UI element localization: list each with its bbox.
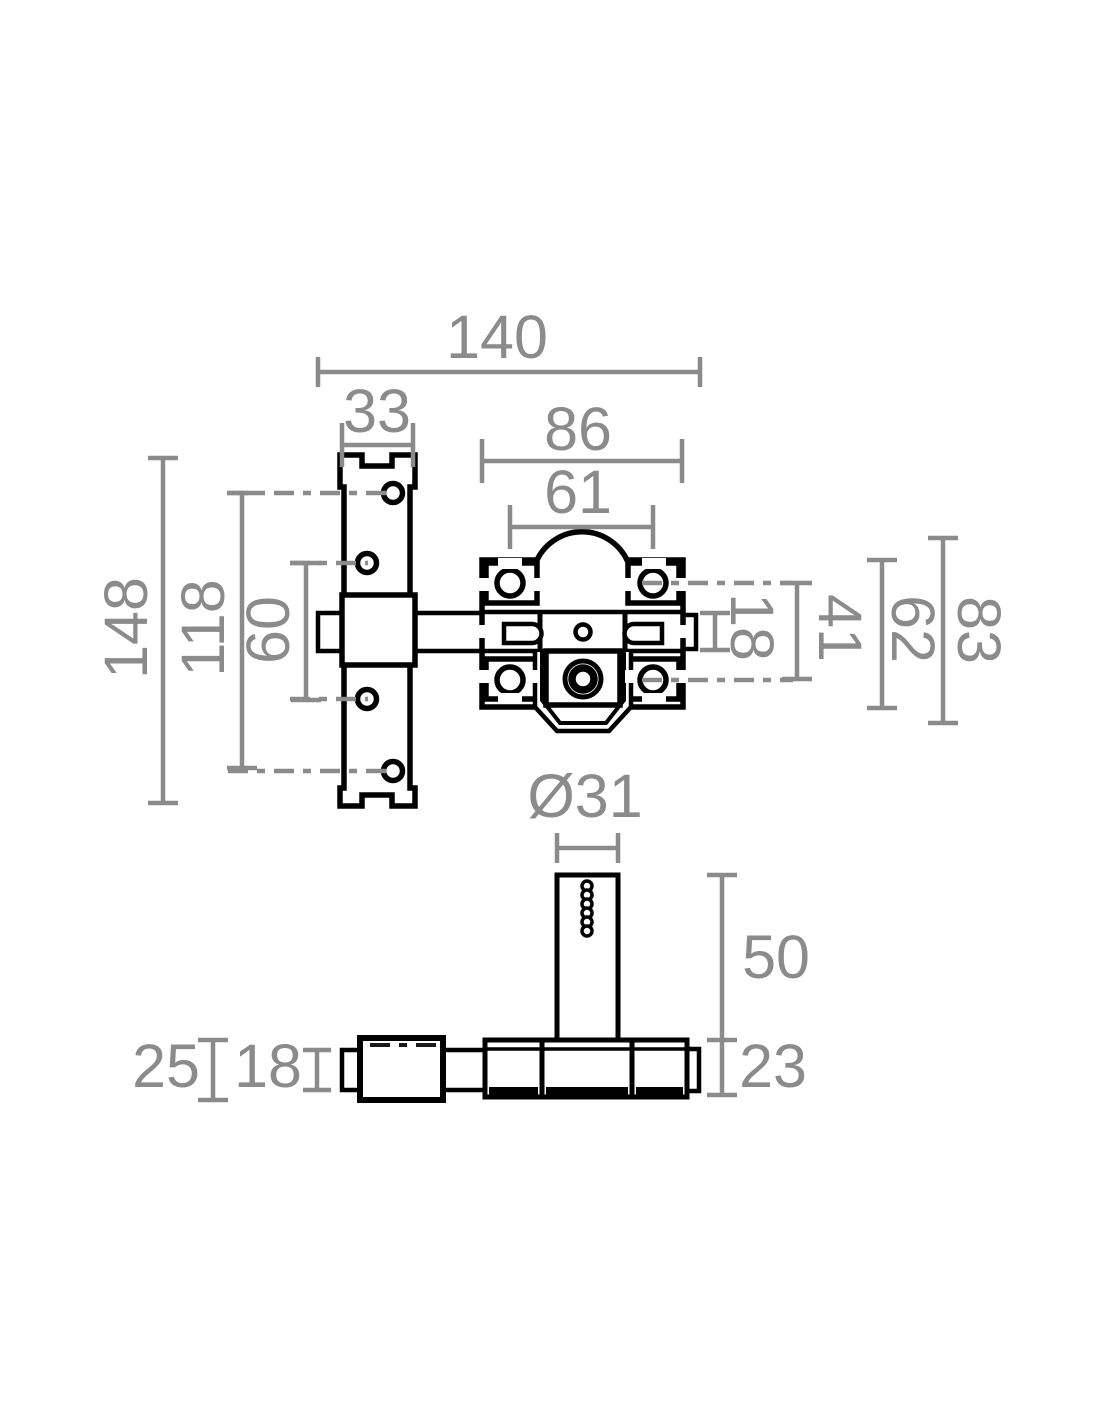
dim-body-width-label: 86 bbox=[544, 395, 612, 463]
keeper-hole-top bbox=[384, 484, 403, 503]
cylinder-inner-ring bbox=[572, 668, 594, 690]
notch-wall-left-mid bbox=[479, 625, 489, 638]
dim-base-depth-label: 23 bbox=[739, 1032, 807, 1100]
base-foot-left bbox=[489, 1087, 538, 1097]
channel-slot-right bbox=[625, 624, 663, 643]
ear-hole-lower-left bbox=[497, 667, 523, 693]
notch-pad-ul-top bbox=[498, 558, 522, 569]
lock-technical-drawing: 140 33 86 61 148 118 60 18 bbox=[0, 0, 1100, 1422]
keeper-middle-block bbox=[342, 595, 415, 665]
dim-bolt-height: 18 bbox=[700, 593, 786, 661]
drawing-canvas: 140 33 86 61 148 118 60 18 bbox=[0, 0, 1100, 1422]
base-foot-center bbox=[546, 1087, 628, 1097]
dim-bolt-depth: 18 bbox=[234, 1032, 331, 1100]
notch-wall-right-mid bbox=[676, 625, 686, 638]
dim-base-depth: 23 bbox=[707, 1032, 807, 1100]
keeper-lower-plate bbox=[340, 663, 415, 806]
notch-pad-ul-inner bbox=[531, 578, 540, 591]
channel-center-hole bbox=[576, 625, 591, 640]
dim-cylinder-diameter-label: Ø31 bbox=[527, 762, 642, 830]
dim-keeper-depth: 25 bbox=[132, 1032, 228, 1100]
dim-keeper-depth-label: 25 bbox=[132, 1032, 200, 1100]
dim-inner-hole-span: 60 bbox=[234, 563, 321, 700]
front-view bbox=[318, 455, 696, 806]
dim-keeper-width-label: 33 bbox=[343, 377, 411, 445]
dim-bolt-height-label: 18 bbox=[718, 593, 786, 661]
dim-cylinder-diameter: Ø31 bbox=[527, 762, 642, 863]
notch-pad-lr-bottom bbox=[642, 693, 666, 704]
dim-keeper-height: 148 bbox=[92, 458, 178, 803]
notch-wall-left-lower bbox=[479, 670, 489, 683]
ear-hole-upper-left bbox=[497, 570, 523, 596]
keeper-hole-bottom bbox=[384, 762, 403, 781]
notch-pad-lr-inner bbox=[625, 670, 634, 683]
dim-ear-hole-span-label: 41 bbox=[806, 594, 874, 662]
keyway-beads bbox=[582, 881, 592, 936]
dim-overall-width: 140 bbox=[318, 303, 700, 387]
dim-inner-height: 62 bbox=[867, 560, 947, 708]
dim-overall-width-label: 140 bbox=[446, 303, 548, 371]
dim-outer-hole-span-label: 118 bbox=[169, 579, 237, 676]
notch-pad-ur-inner bbox=[625, 578, 634, 591]
dim-overall-height: 83 bbox=[928, 538, 1013, 723]
dim-bolt-depth-label: 18 bbox=[234, 1032, 302, 1100]
dim-cylinder-height: 50 bbox=[707, 875, 810, 1040]
dim-inner-hole-span-label: 60 bbox=[234, 596, 302, 664]
dim-arch-width-label: 61 bbox=[544, 458, 612, 526]
notch-pad-ll-bottom bbox=[498, 693, 522, 704]
bottom-view bbox=[342, 875, 699, 1100]
dim-overall-height-label: 83 bbox=[945, 596, 1013, 664]
dim-cylinder-height-label: 50 bbox=[742, 923, 810, 991]
lock-body bbox=[479, 532, 686, 731]
channel-slot-left bbox=[504, 624, 542, 643]
dim-keeper-height-label: 148 bbox=[92, 577, 160, 679]
keyway-bead bbox=[582, 926, 592, 936]
base-foot-right bbox=[636, 1087, 683, 1097]
keeper-block-profile bbox=[360, 1038, 443, 1100]
keeper-plate bbox=[318, 455, 415, 806]
dim-ear-hole-span: 41 bbox=[782, 583, 874, 679]
dim-inner-height-label: 62 bbox=[879, 595, 947, 663]
notch-pad-ll-inner bbox=[531, 670, 540, 683]
notch-pad-ur-top bbox=[642, 558, 666, 569]
keeper-upper-plate bbox=[340, 455, 415, 597]
notch-wall-left-upper bbox=[479, 578, 489, 591]
